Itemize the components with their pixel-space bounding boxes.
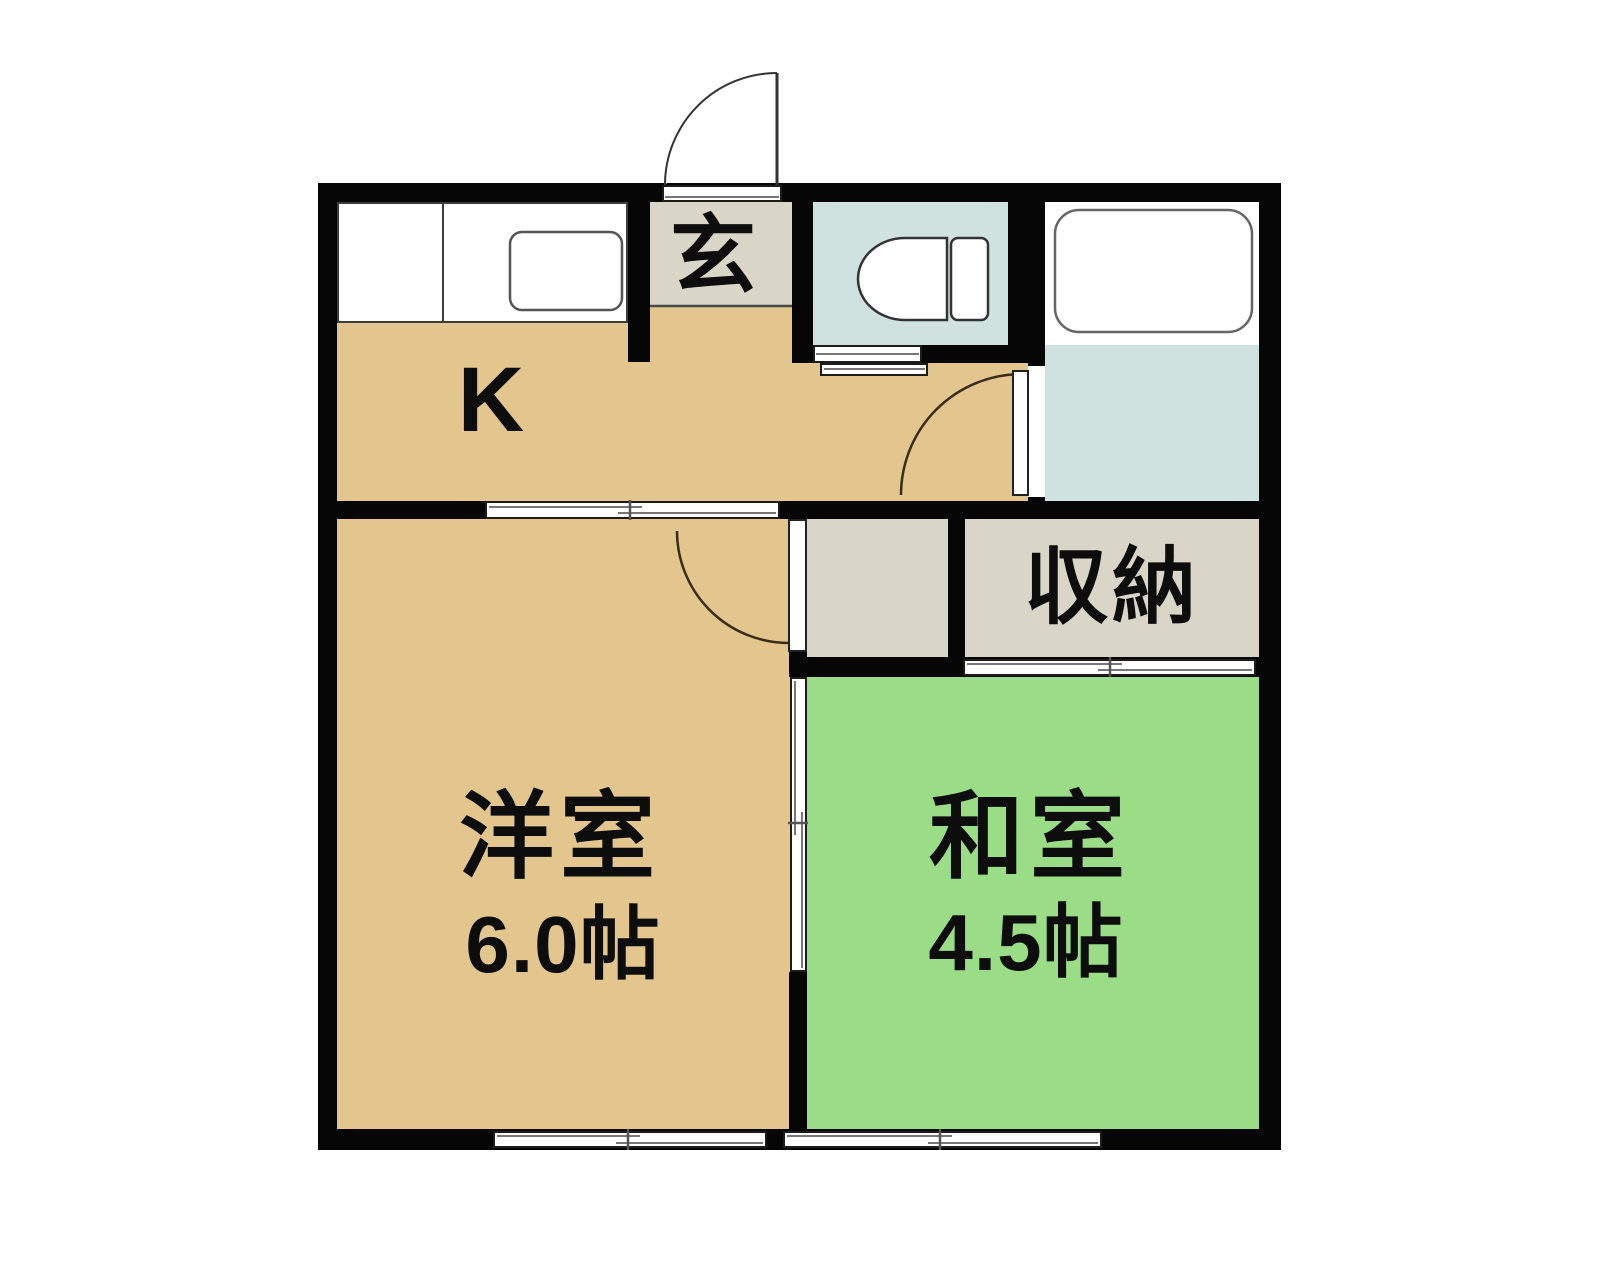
wall-kitchen-entrance bbox=[628, 183, 650, 362]
sliding-door-storage bbox=[963, 659, 1256, 676]
window-japanese-room bbox=[783, 1131, 1102, 1148]
wall-right bbox=[1259, 183, 1281, 1150]
kitchen-counter bbox=[337, 202, 628, 323]
bathroom-door-opening bbox=[1028, 366, 1045, 497]
storage-label: 収納 bbox=[1024, 545, 1200, 629]
western-room-label: 洋室 bbox=[459, 791, 661, 886]
closet-floor bbox=[807, 519, 948, 657]
kitchen-label: K bbox=[458, 354, 526, 446]
entry-door-sill bbox=[662, 185, 782, 202]
western-room-area: 6.0帖 bbox=[465, 905, 660, 985]
wall-west-japanese bbox=[789, 972, 807, 1129]
toilet-room-floor bbox=[813, 202, 1008, 345]
japanese-room-label: 和室 bbox=[929, 791, 1131, 886]
wall-closet-storage bbox=[948, 519, 965, 658]
window-western-room bbox=[493, 1131, 767, 1148]
toilet-sliding-door-track bbox=[820, 363, 928, 376]
entry-door-arc bbox=[665, 73, 777, 185]
toilet-sliding-door bbox=[813, 345, 922, 363]
bathroom-floor bbox=[1045, 345, 1259, 501]
wall-left bbox=[318, 183, 337, 1150]
sliding-door-kitchen-western bbox=[485, 501, 780, 519]
sliding-door-western-japanese bbox=[790, 677, 807, 972]
japanese-room-area: 4.5帖 bbox=[928, 903, 1123, 983]
floor-plan: K 玄 収納 洋室 6.0帖 和室 4.5帖 bbox=[0, 0, 1600, 1280]
bathroom-tub-area bbox=[1045, 202, 1259, 345]
wall-divider-stub bbox=[789, 652, 807, 677]
entrance-label: 玄 bbox=[670, 213, 758, 299]
wall-toilet-right bbox=[1008, 183, 1028, 363]
wall-entrance-toilet bbox=[792, 183, 813, 363]
wall-mid-horizontal bbox=[337, 501, 1259, 519]
